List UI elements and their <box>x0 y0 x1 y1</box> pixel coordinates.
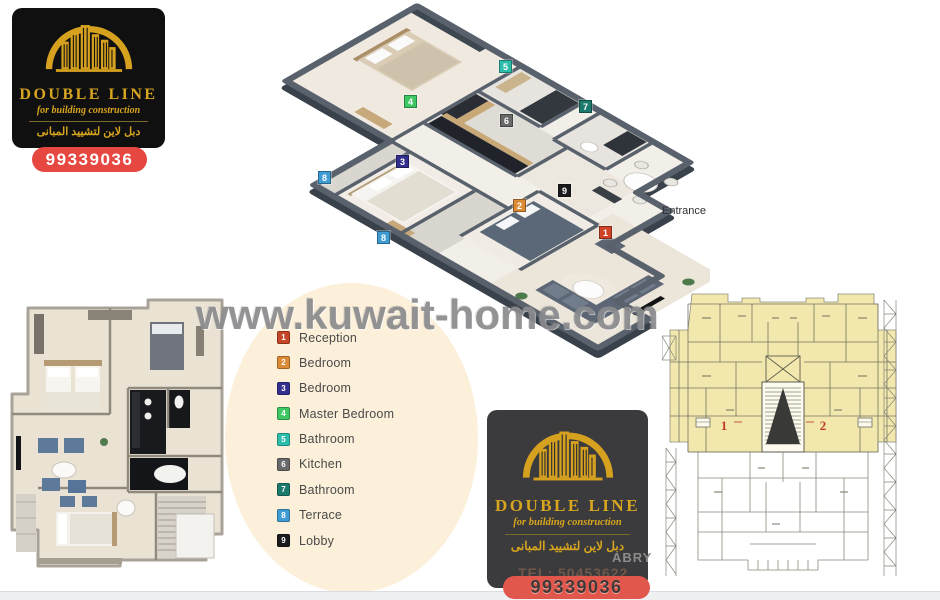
brand-name: DOUBLE LINE <box>19 86 157 104</box>
legend-chip: 6 <box>277 458 290 471</box>
legend-chip: 1 <box>277 331 290 344</box>
legend-label: Terrace <box>299 508 342 522</box>
page: 1234567889 Entrance www.kuwait-home.com … <box>0 0 940 600</box>
room-marker-6: 6 <box>500 114 513 127</box>
brand-name-arabic: دبل لاين لتشييد المبانى <box>511 539 624 553</box>
room-marker-1: 1 <box>599 226 612 239</box>
legend-chip: 2 <box>277 356 290 369</box>
legend-label: Reception <box>299 331 357 345</box>
cad-unit-2: 2 <box>820 418 827 433</box>
legend-item-kitchen: 6Kitchen <box>277 458 394 471</box>
room-marker-7: 7 <box>579 100 592 113</box>
logo-card-top: DOUBLE LINE for building construction دب… <box>12 8 165 148</box>
phone-pill-top: 99339036 <box>32 147 147 172</box>
legend-label: Kitchen <box>299 457 342 471</box>
cad-unit-1: 1 <box>721 418 728 433</box>
legend-chip: 7 <box>277 483 290 496</box>
entrance-label: Entrance <box>662 205 706 217</box>
legend-chip: 4 <box>277 407 290 420</box>
legend-item-reception: 1Reception <box>277 331 394 344</box>
legend-item-terrace: 8Terrace <box>277 509 394 522</box>
cad-drawing: 1 2 <box>662 292 908 584</box>
brand-name-arabic: دبل لاين لتشييد المبانى <box>37 125 141 138</box>
room-marker-5: 5 <box>499 60 512 73</box>
legend-item-master-bedroom: 4Master Bedroom <box>277 407 394 420</box>
room-marker-8: 8 <box>377 231 390 244</box>
legend-chip: 5 <box>277 433 290 446</box>
legend-label: Bathroom <box>299 432 355 446</box>
room-marker-3: 3 <box>396 155 409 168</box>
legend-label: Lobby <box>299 534 334 548</box>
legend-chip: 9 <box>277 534 290 547</box>
legend-chip: 3 <box>277 382 290 395</box>
room-marker-9: 9 <box>558 184 571 197</box>
legend-item-bedroom: 2Bedroom <box>277 356 394 369</box>
room-marker-2: 2 <box>513 199 526 212</box>
brand-tagline: for building construction <box>513 517 622 528</box>
legend-item-bathroom: 5Bathroom <box>277 433 394 446</box>
phone-pill-bottom: 99339036 <box>503 576 650 599</box>
brand-name: DOUBLE LINE <box>495 496 640 516</box>
buildings-arch-icon <box>520 420 616 491</box>
legend-item-lobby: 9Lobby <box>277 534 394 547</box>
logo-divider <box>29 121 148 122</box>
legend-label: Bathroom <box>299 483 355 497</box>
designer-ghost-text: ABRY <box>612 550 652 565</box>
brand-tagline: for building construction <box>37 105 140 116</box>
bottom-strip <box>0 591 940 600</box>
legend-chip: 8 <box>277 509 290 522</box>
legend: 1Reception2Bedroom3Bedroom4Master Bedroo… <box>277 331 394 560</box>
room-marker-8: 8 <box>318 171 331 184</box>
legend-item-bedroom: 3Bedroom <box>277 382 394 395</box>
legend-item-bathroom: 7Bathroom <box>277 483 394 496</box>
logo-divider <box>505 534 631 535</box>
site-watermark: www.kuwait-home.com <box>196 291 659 339</box>
legend-label: Bedroom <box>299 356 351 370</box>
buildings-arch-icon <box>43 14 135 82</box>
legend-label: Bedroom <box>299 381 351 395</box>
room-marker-4: 4 <box>404 95 417 108</box>
legend-label: Master Bedroom <box>299 407 394 421</box>
